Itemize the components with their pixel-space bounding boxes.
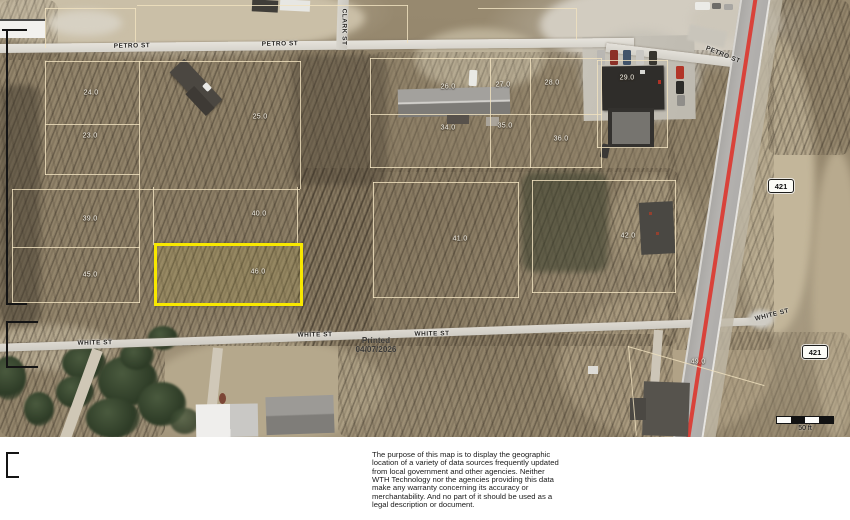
forest-texture bbox=[768, 0, 850, 155]
parcel-number-label: 36.0 bbox=[554, 136, 569, 143]
printed-annotation: Printed 04/07/2026 bbox=[336, 337, 416, 355]
parcel-number-label: 24.0 bbox=[84, 90, 99, 97]
parcel-boundary-line bbox=[667, 60, 668, 148]
parcel-boundary-line bbox=[530, 58, 531, 168]
map-frame-line bbox=[2, 29, 27, 31]
scale-bar-segment bbox=[791, 417, 805, 423]
parcel-boundary-line bbox=[597, 60, 598, 148]
parcel-boundary-line bbox=[518, 182, 519, 298]
parcel-boundary-line bbox=[370, 58, 602, 59]
parcel-boundary-line bbox=[532, 180, 533, 293]
car bbox=[712, 3, 721, 9]
parcel-number-label: 27.0 bbox=[496, 82, 511, 89]
parcel-boundary-line bbox=[45, 61, 301, 62]
building bbox=[252, 0, 279, 13]
parcel-boundary-line bbox=[300, 61, 301, 189]
building bbox=[608, 108, 654, 148]
parcel-number-label: 41.0 bbox=[453, 236, 468, 243]
parcel-boundary-line bbox=[297, 187, 298, 245]
scale-bar-label: 50 ft bbox=[776, 425, 834, 432]
parcel-boundary-line bbox=[370, 58, 371, 168]
map-frame-line bbox=[6, 321, 38, 323]
parcel-boundary-line bbox=[12, 302, 140, 303]
parcel-boundary-line bbox=[45, 174, 140, 175]
building bbox=[642, 381, 690, 437]
parcel-boundary-line bbox=[45, 124, 140, 125]
parcel-boundary-line bbox=[139, 188, 140, 303]
parcel-boundary-line bbox=[153, 187, 154, 245]
building bbox=[602, 65, 665, 110]
map-frame-line bbox=[6, 366, 38, 368]
building bbox=[398, 87, 511, 118]
parcel-number-label: 23.0 bbox=[83, 133, 98, 140]
parcel-boundary-line bbox=[373, 182, 374, 298]
building bbox=[447, 115, 469, 124]
parcel-boundary-line bbox=[407, 5, 408, 43]
conifer-tree bbox=[86, 398, 140, 437]
forest-texture bbox=[298, 168, 678, 346]
conifer-tree bbox=[24, 392, 54, 426]
parcel-boundary-line bbox=[601, 58, 602, 168]
building bbox=[196, 403, 259, 437]
rooftop-unit bbox=[658, 80, 661, 84]
parcel-number-label: 45.0 bbox=[83, 272, 98, 279]
parcel-boundary-line bbox=[139, 61, 140, 189]
map-frame-line bbox=[6, 452, 8, 478]
map-frame-line bbox=[6, 303, 27, 305]
parcel-boundary-line bbox=[675, 180, 676, 293]
parcel-boundary-line bbox=[12, 247, 140, 248]
street-name-label: WHITE ST bbox=[414, 330, 449, 338]
car bbox=[623, 50, 631, 65]
parcel-boundary-line bbox=[12, 189, 300, 190]
rooftop-unit bbox=[649, 212, 652, 215]
chimney bbox=[219, 393, 226, 404]
parcel-boundary-line bbox=[12, 189, 13, 303]
car bbox=[636, 50, 644, 65]
building bbox=[265, 395, 334, 435]
parcel-boundary-line bbox=[532, 292, 676, 293]
parcel-number-label: 42.0 bbox=[621, 233, 636, 240]
car bbox=[676, 81, 684, 94]
map-frame-line bbox=[6, 476, 19, 478]
street-name-label: PETRO ST bbox=[262, 40, 299, 48]
parcel-number-label: 25.0 bbox=[253, 114, 268, 121]
parcel-boundary-line bbox=[370, 167, 602, 168]
parcel-boundary-line bbox=[576, 8, 577, 40]
car bbox=[469, 70, 478, 86]
parcel-boundary-line bbox=[532, 180, 676, 181]
disclaimer-text: The purpose of this map is to display th… bbox=[372, 451, 559, 509]
car bbox=[695, 2, 710, 10]
parcel-number-label: 49.0 bbox=[691, 359, 706, 366]
parcel-number-label: 26.0 bbox=[441, 84, 456, 91]
parcel-number-label: 35.0 bbox=[498, 123, 513, 130]
tree-shadow-patch bbox=[292, 55, 387, 185]
street-name-label: WHITE ST bbox=[77, 339, 112, 347]
evergreen-grove bbox=[522, 172, 608, 272]
driveway-loop bbox=[48, 10, 122, 36]
printed-date-label: 04/07/2026 bbox=[336, 346, 416, 355]
rooftop-unit bbox=[640, 70, 645, 74]
parcel-number-label: 29.0 bbox=[620, 75, 635, 82]
street-name-label: CLARK ST bbox=[341, 9, 348, 46]
highlighted-parcel[interactable] bbox=[154, 243, 303, 306]
parcel-number-label: 34.0 bbox=[441, 125, 456, 132]
parcel-boundary-line bbox=[137, 5, 408, 6]
map-frame-line bbox=[6, 29, 8, 305]
map-frame-line bbox=[6, 321, 8, 368]
building bbox=[639, 201, 676, 255]
rooftop-unit bbox=[656, 232, 659, 235]
car bbox=[676, 66, 684, 79]
parcel-boundary-line bbox=[478, 8, 576, 9]
map-frame-line bbox=[6, 452, 19, 454]
parcel-boundary-line bbox=[370, 114, 602, 115]
parcel-boundary-line bbox=[373, 297, 519, 298]
parcel-boundary-line bbox=[45, 8, 46, 48]
parcel-boundary-line bbox=[597, 60, 668, 61]
car bbox=[677, 95, 685, 106]
shed bbox=[588, 366, 598, 374]
car bbox=[649, 51, 657, 65]
parcel-number-label: 28.0 bbox=[545, 80, 560, 87]
street-name-label: PETRO ST bbox=[114, 42, 151, 50]
car bbox=[610, 50, 618, 65]
parcel-number-label: 46.0 bbox=[251, 269, 266, 276]
disclaimer-line: legal description or document. bbox=[372, 501, 559, 509]
parcel-boundary-line bbox=[490, 58, 491, 168]
scale-bar-segment bbox=[819, 417, 833, 423]
parcel-boundary-line bbox=[373, 182, 519, 183]
highway-route-shield: 421 bbox=[768, 179, 794, 193]
parcel-number-label: 39.0 bbox=[83, 216, 98, 223]
scale-bar bbox=[776, 416, 834, 424]
highway-route-shield: 421 bbox=[802, 345, 828, 359]
parcel-boundary-line bbox=[45, 61, 46, 175]
street-name-label: WHITE ST bbox=[297, 331, 332, 339]
car bbox=[724, 4, 733, 10]
aerial-map-canvas: Printed 04/07/2026 50 ft PETRO STPETRO S… bbox=[0, 0, 850, 437]
parcel-boundary-line bbox=[45, 8, 136, 9]
map-print-page: Printed 04/07/2026 50 ft PETRO STPETRO S… bbox=[0, 0, 850, 520]
parcel-number-label: 40.0 bbox=[252, 211, 267, 218]
parcel-boundary-line bbox=[597, 147, 668, 148]
